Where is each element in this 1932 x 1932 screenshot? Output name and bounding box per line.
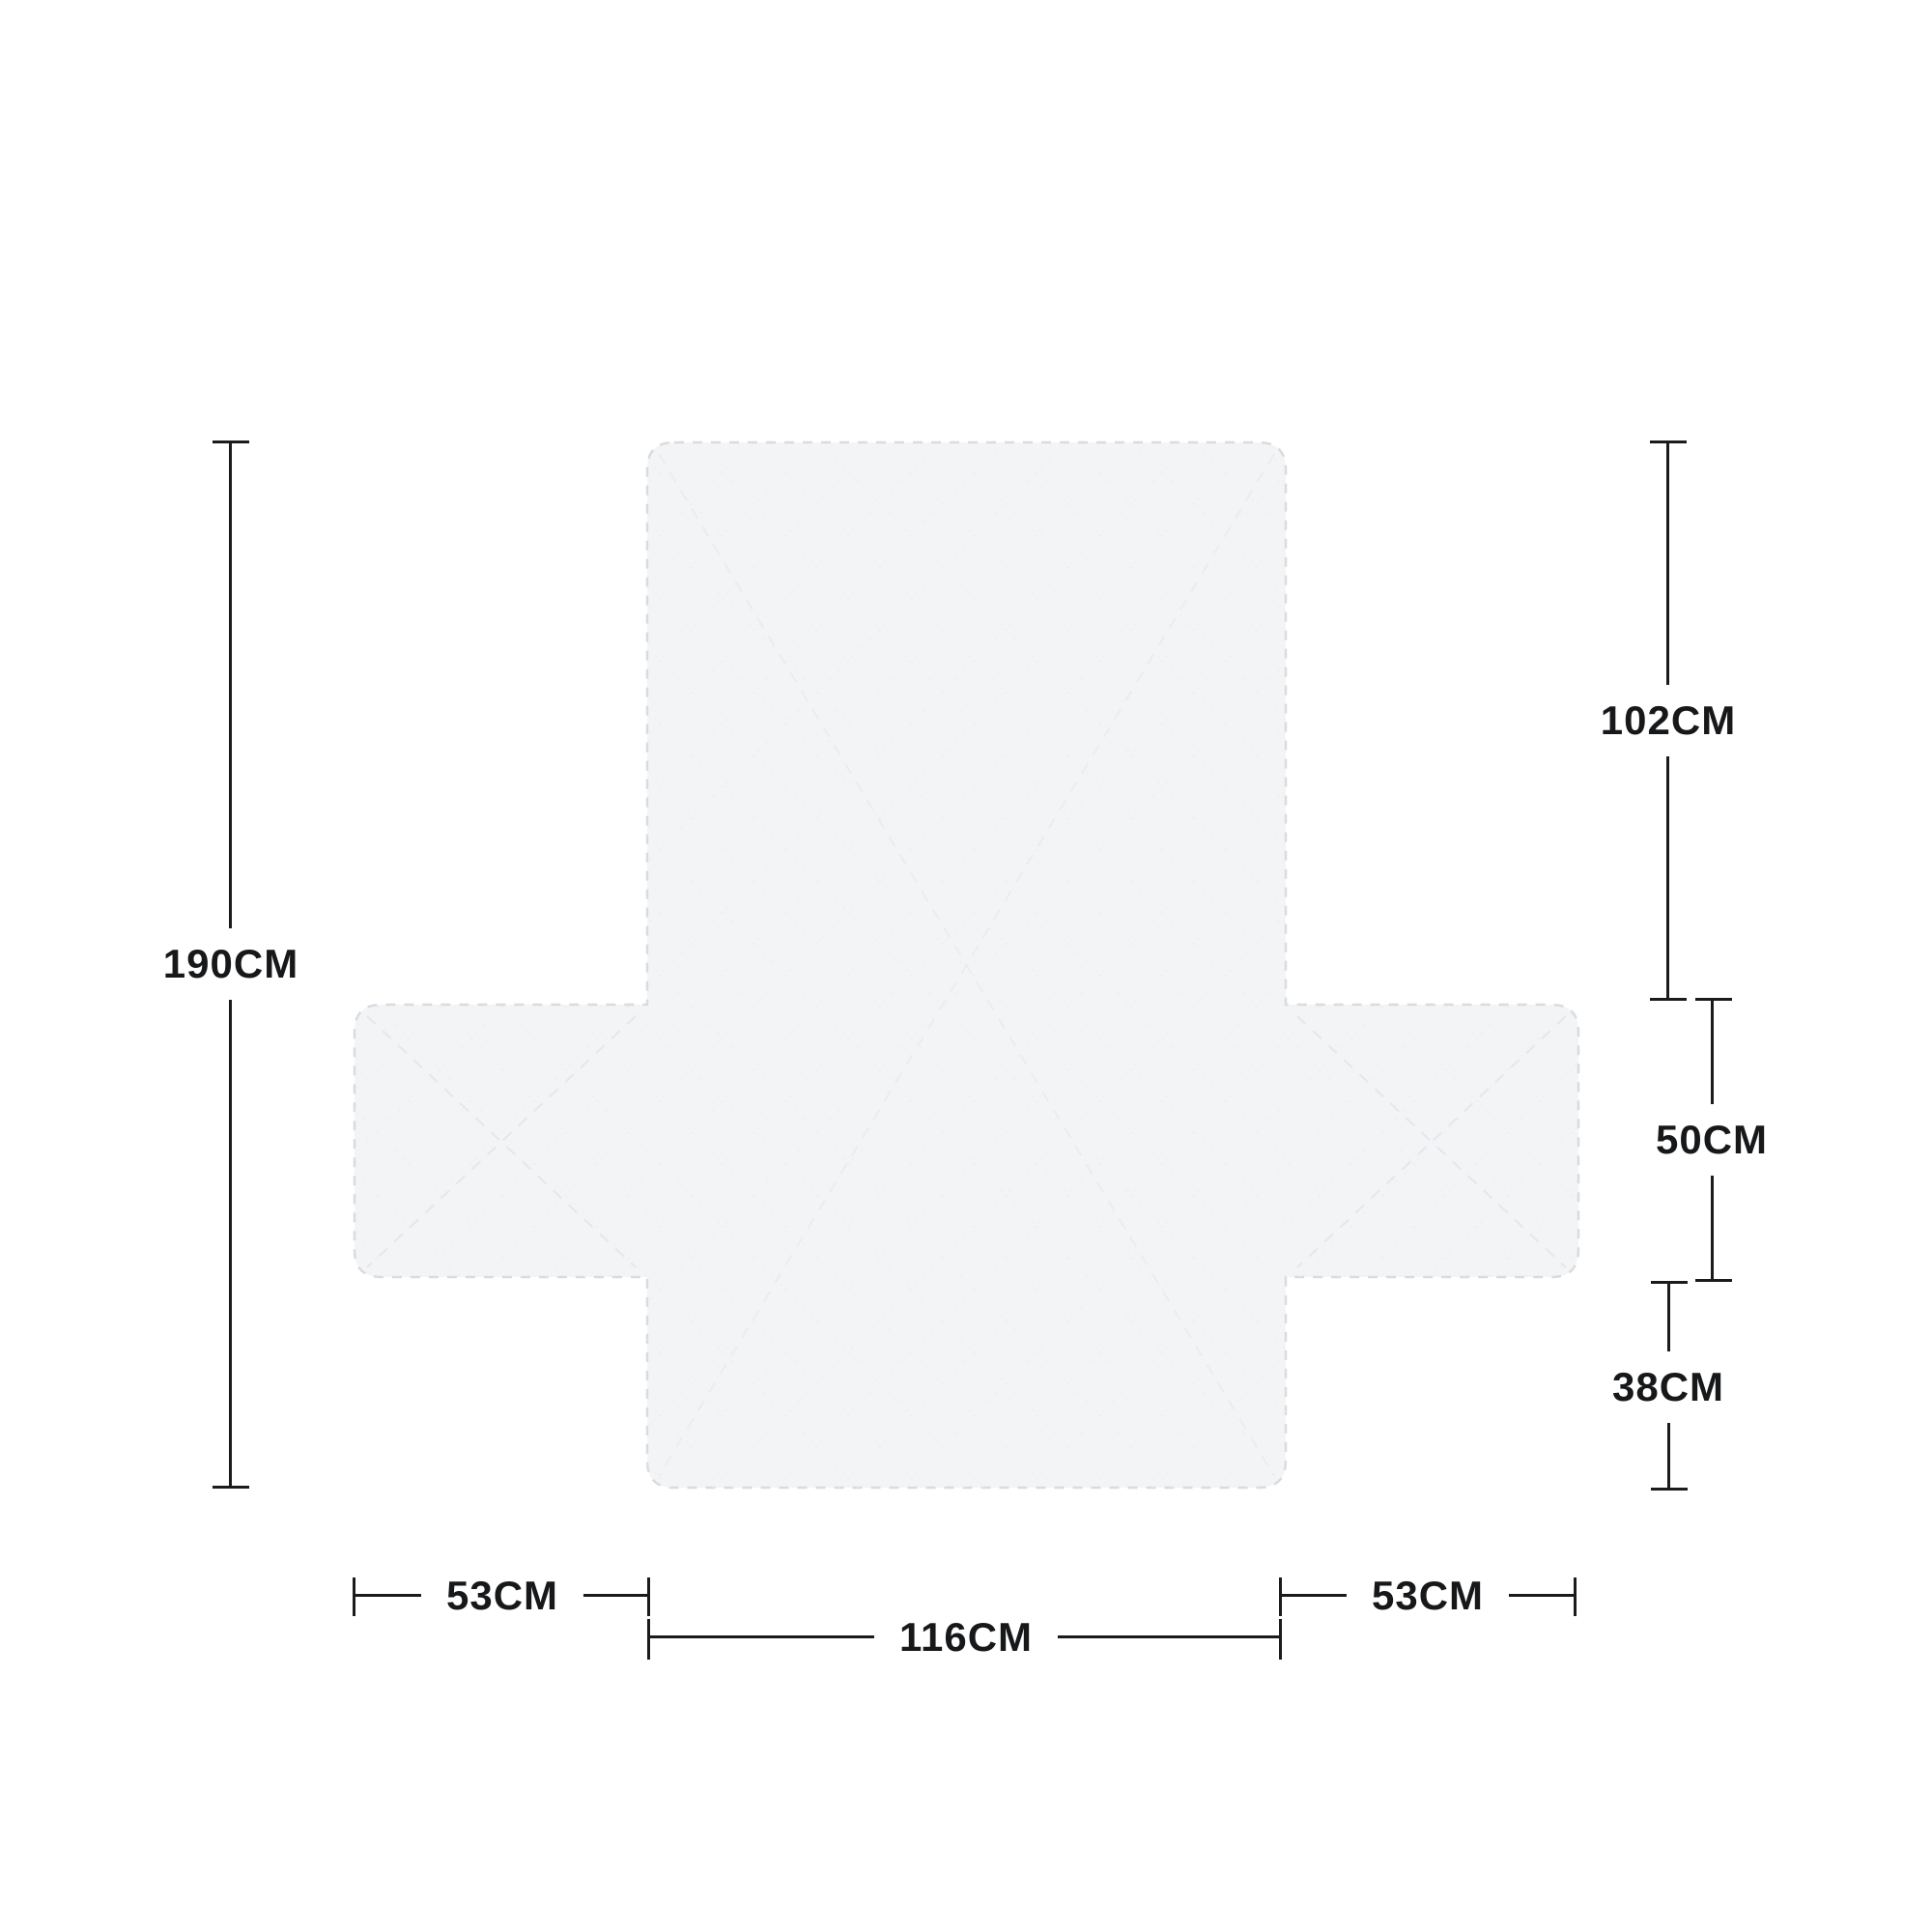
dim-arm-depth-tick-bottom xyxy=(1695,1279,1732,1282)
dim-seat-width-tick-right xyxy=(1279,1619,1282,1660)
dim-skirt-height-tick-bottom xyxy=(1651,1488,1688,1491)
dim-left-arm-width-tick-left xyxy=(353,1577,355,1616)
quilt-texture xyxy=(290,386,1642,1594)
dim-right-arm-width-tick-left xyxy=(1279,1577,1282,1616)
dim-seat-width-tick-left xyxy=(647,1619,650,1660)
dimension-label-arm-depth: 50CM xyxy=(1648,1104,1776,1176)
dimension-label-back-height: 102CM xyxy=(1593,685,1744,756)
dimension-label-right-arm-width: 53CM xyxy=(1347,1572,1509,1620)
dim-arm-depth-tick-top xyxy=(1695,998,1732,1001)
dimension-label-left-arm-width: 53CM xyxy=(421,1572,583,1620)
dimension-label-skirt-height: 38CM xyxy=(1605,1351,1732,1423)
dim-back-height-tick-bottom xyxy=(1650,998,1687,1001)
dimension-diagram: 190CM 102CM 50CM 38CM 53CM 116CM 53CM xyxy=(0,0,1932,1932)
dim-right-arm-width-tick-right xyxy=(1574,1577,1577,1616)
dim-total-height-tick-bottom xyxy=(213,1486,249,1489)
dim-left-arm-width-tick-right xyxy=(647,1577,650,1616)
dimension-label-seat-width: 116CM xyxy=(874,1613,1058,1662)
dimension-label-total-height: 190CM xyxy=(156,928,306,1000)
